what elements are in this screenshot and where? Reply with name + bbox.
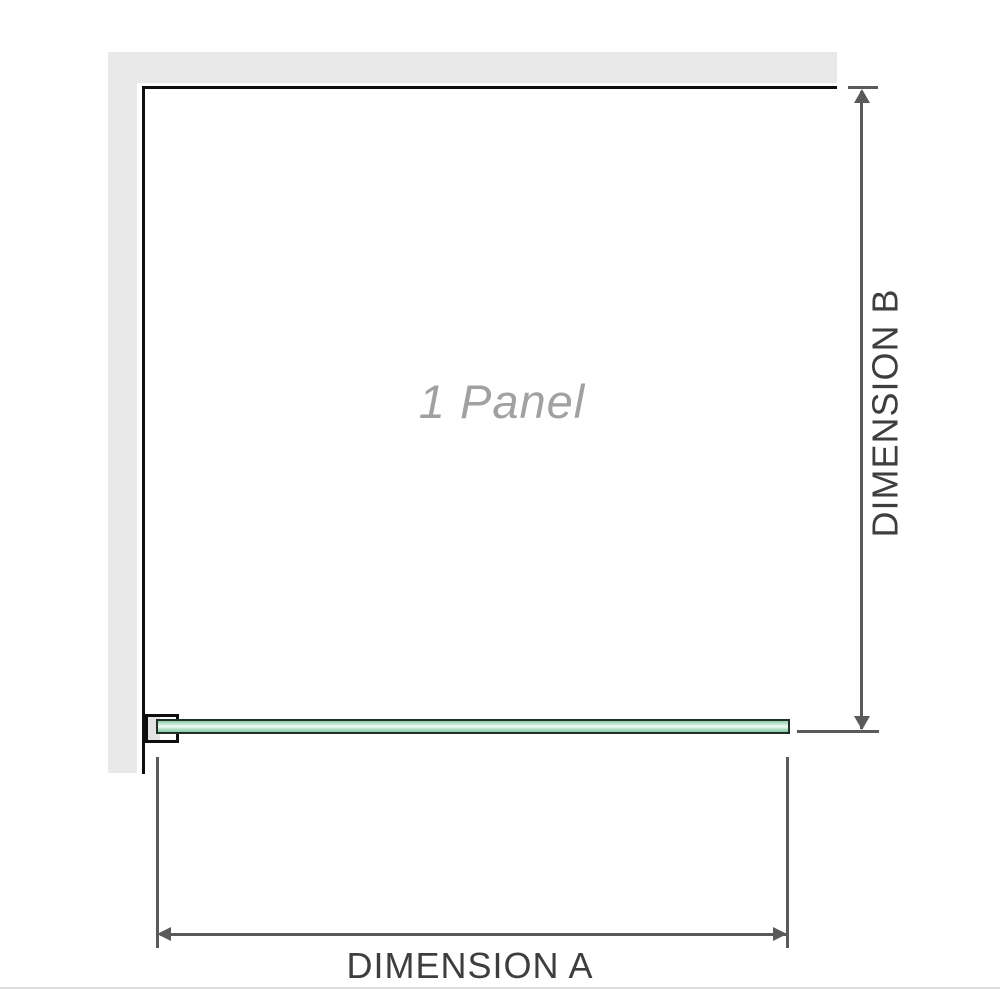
- glass-panel: [156, 719, 790, 734]
- wall-top: [108, 52, 837, 83]
- panel-count-text: 1 Panel: [419, 374, 585, 429]
- image-baseline-divider: [0, 987, 1000, 989]
- dimension-b-text: DIMENSION B: [865, 288, 907, 537]
- arrow-right-icon: [773, 927, 787, 941]
- arrow-left-icon: [157, 927, 171, 941]
- arrow-up-icon: [854, 89, 870, 103]
- shower-panel-diagram: 1 Panel DIMENSION B DIMENSION A: [0, 0, 1000, 1000]
- dimension-b-line: [860, 91, 863, 729]
- dimension-a-extension-left: [156, 757, 159, 948]
- dimension-a-text: DIMENSION A: [346, 945, 593, 987]
- panel-area-border-left: [142, 86, 145, 774]
- wall-left: [108, 52, 137, 773]
- panel-area-border-top: [142, 86, 837, 89]
- arrow-down-icon: [854, 716, 870, 730]
- dimension-a-line: [160, 933, 786, 936]
- dimension-a-extension-right: [786, 757, 789, 948]
- dimension-b-extension-bottom: [797, 730, 879, 733]
